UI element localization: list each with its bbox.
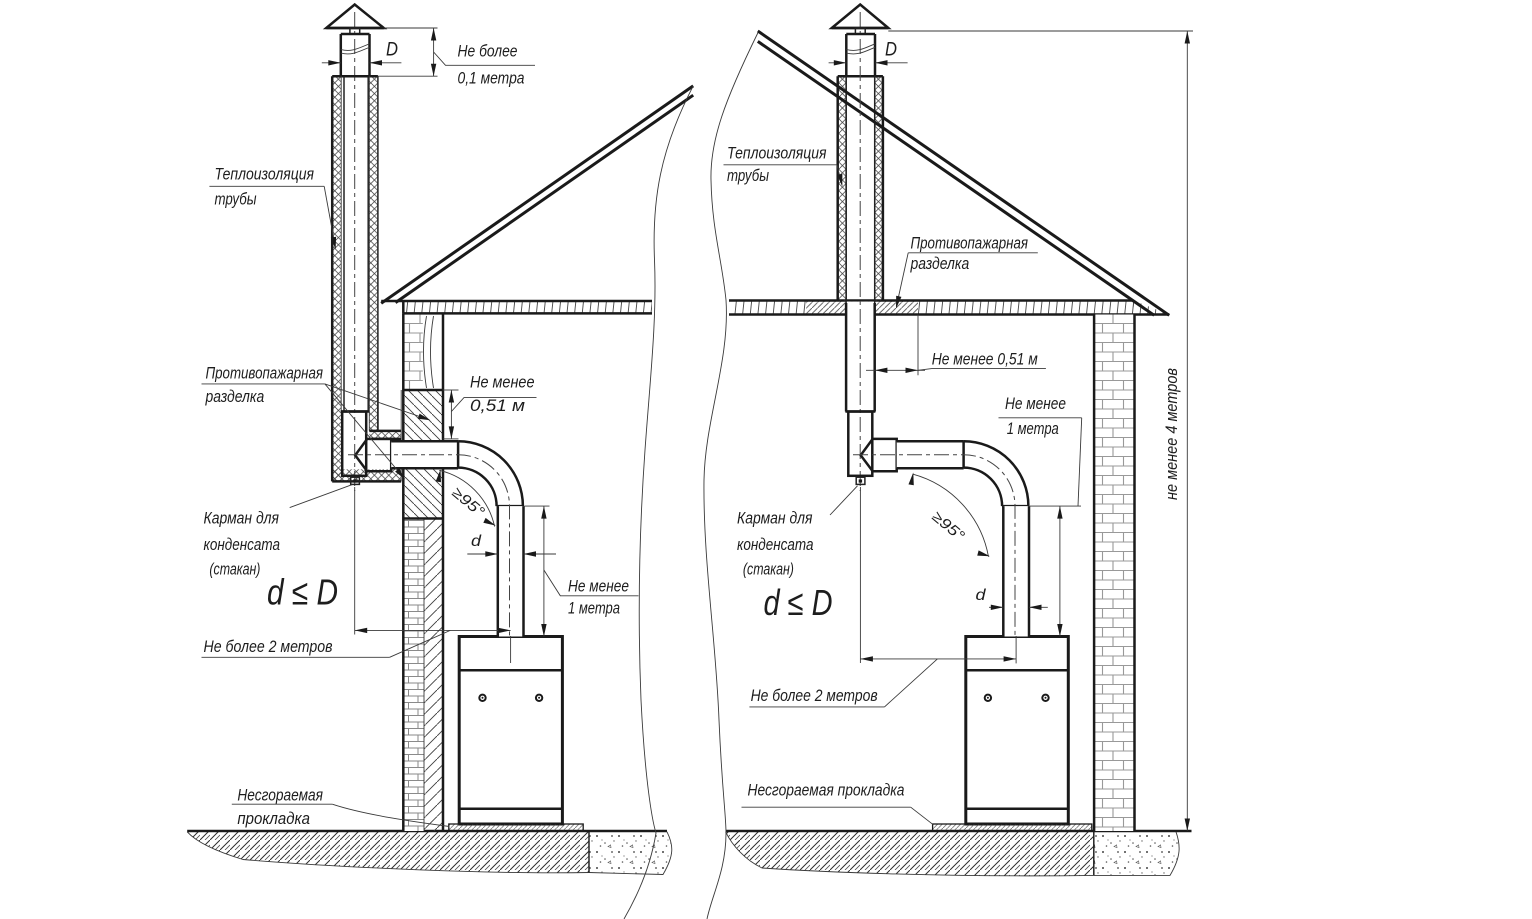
svg-text:d: d bbox=[471, 533, 482, 550]
svg-text:разделка: разделка bbox=[205, 387, 265, 406]
svg-text:0,51 м: 0,51 м bbox=[470, 396, 525, 415]
svg-text:не менее 4 метров: не менее 4 метров bbox=[1162, 368, 1181, 500]
svg-text:конденсата: конденсата bbox=[204, 535, 281, 554]
svg-text:Не менее: Не менее bbox=[470, 373, 535, 392]
svg-text:разделка: разделка bbox=[910, 254, 970, 273]
svg-text:трубы: трубы bbox=[215, 189, 257, 208]
svg-text:D: D bbox=[885, 40, 897, 61]
svg-text:1 метра: 1 метра bbox=[568, 598, 620, 617]
svg-text:Противопажарная: Противопажарная bbox=[911, 234, 1029, 253]
svg-text:Не менее: Не менее bbox=[568, 577, 629, 596]
svg-text:1 метра: 1 метра bbox=[1007, 419, 1059, 438]
svg-text:Не более 2 метров: Не более 2 метров bbox=[204, 637, 333, 656]
svg-text:Карман для: Карман для bbox=[737, 508, 813, 527]
svg-text:(стакан): (стакан) bbox=[209, 560, 260, 579]
svg-text:d ≤ D: d ≤ D bbox=[764, 582, 833, 623]
svg-text:прокладка: прокладка bbox=[237, 809, 310, 828]
svg-text:Не менее: Не менее bbox=[1005, 394, 1066, 413]
svg-text:0,1 метра: 0,1 метра bbox=[458, 69, 525, 88]
svg-text:D: D bbox=[386, 40, 398, 61]
svg-text:(стакан): (стакан) bbox=[743, 560, 794, 579]
svg-text:конденсата: конденсата bbox=[737, 535, 814, 554]
svg-text:Карман для: Карман для bbox=[204, 508, 280, 527]
svg-text:d: d bbox=[976, 587, 987, 604]
svg-text:Не более 2 метров: Не более 2 метров bbox=[751, 686, 878, 705]
svg-text:Несгораемая: Несгораемая bbox=[237, 785, 323, 804]
svg-text:Несгораемая прокладка: Несгораемая прокладка bbox=[748, 780, 905, 799]
svg-text:Не более: Не более bbox=[458, 41, 518, 60]
svg-text:d ≤ D: d ≤ D bbox=[267, 572, 338, 613]
svg-text:Противопажарная: Противопажарная bbox=[206, 364, 324, 383]
svg-text:Теплоизоляция: Теплоизоляция bbox=[215, 164, 315, 183]
svg-text:Не менее 0,51 м: Не менее 0,51 м bbox=[932, 349, 1038, 368]
svg-text:трубы: трубы bbox=[727, 166, 769, 185]
svg-text:Теплоизоляция: Теплоизоляция bbox=[727, 143, 827, 162]
